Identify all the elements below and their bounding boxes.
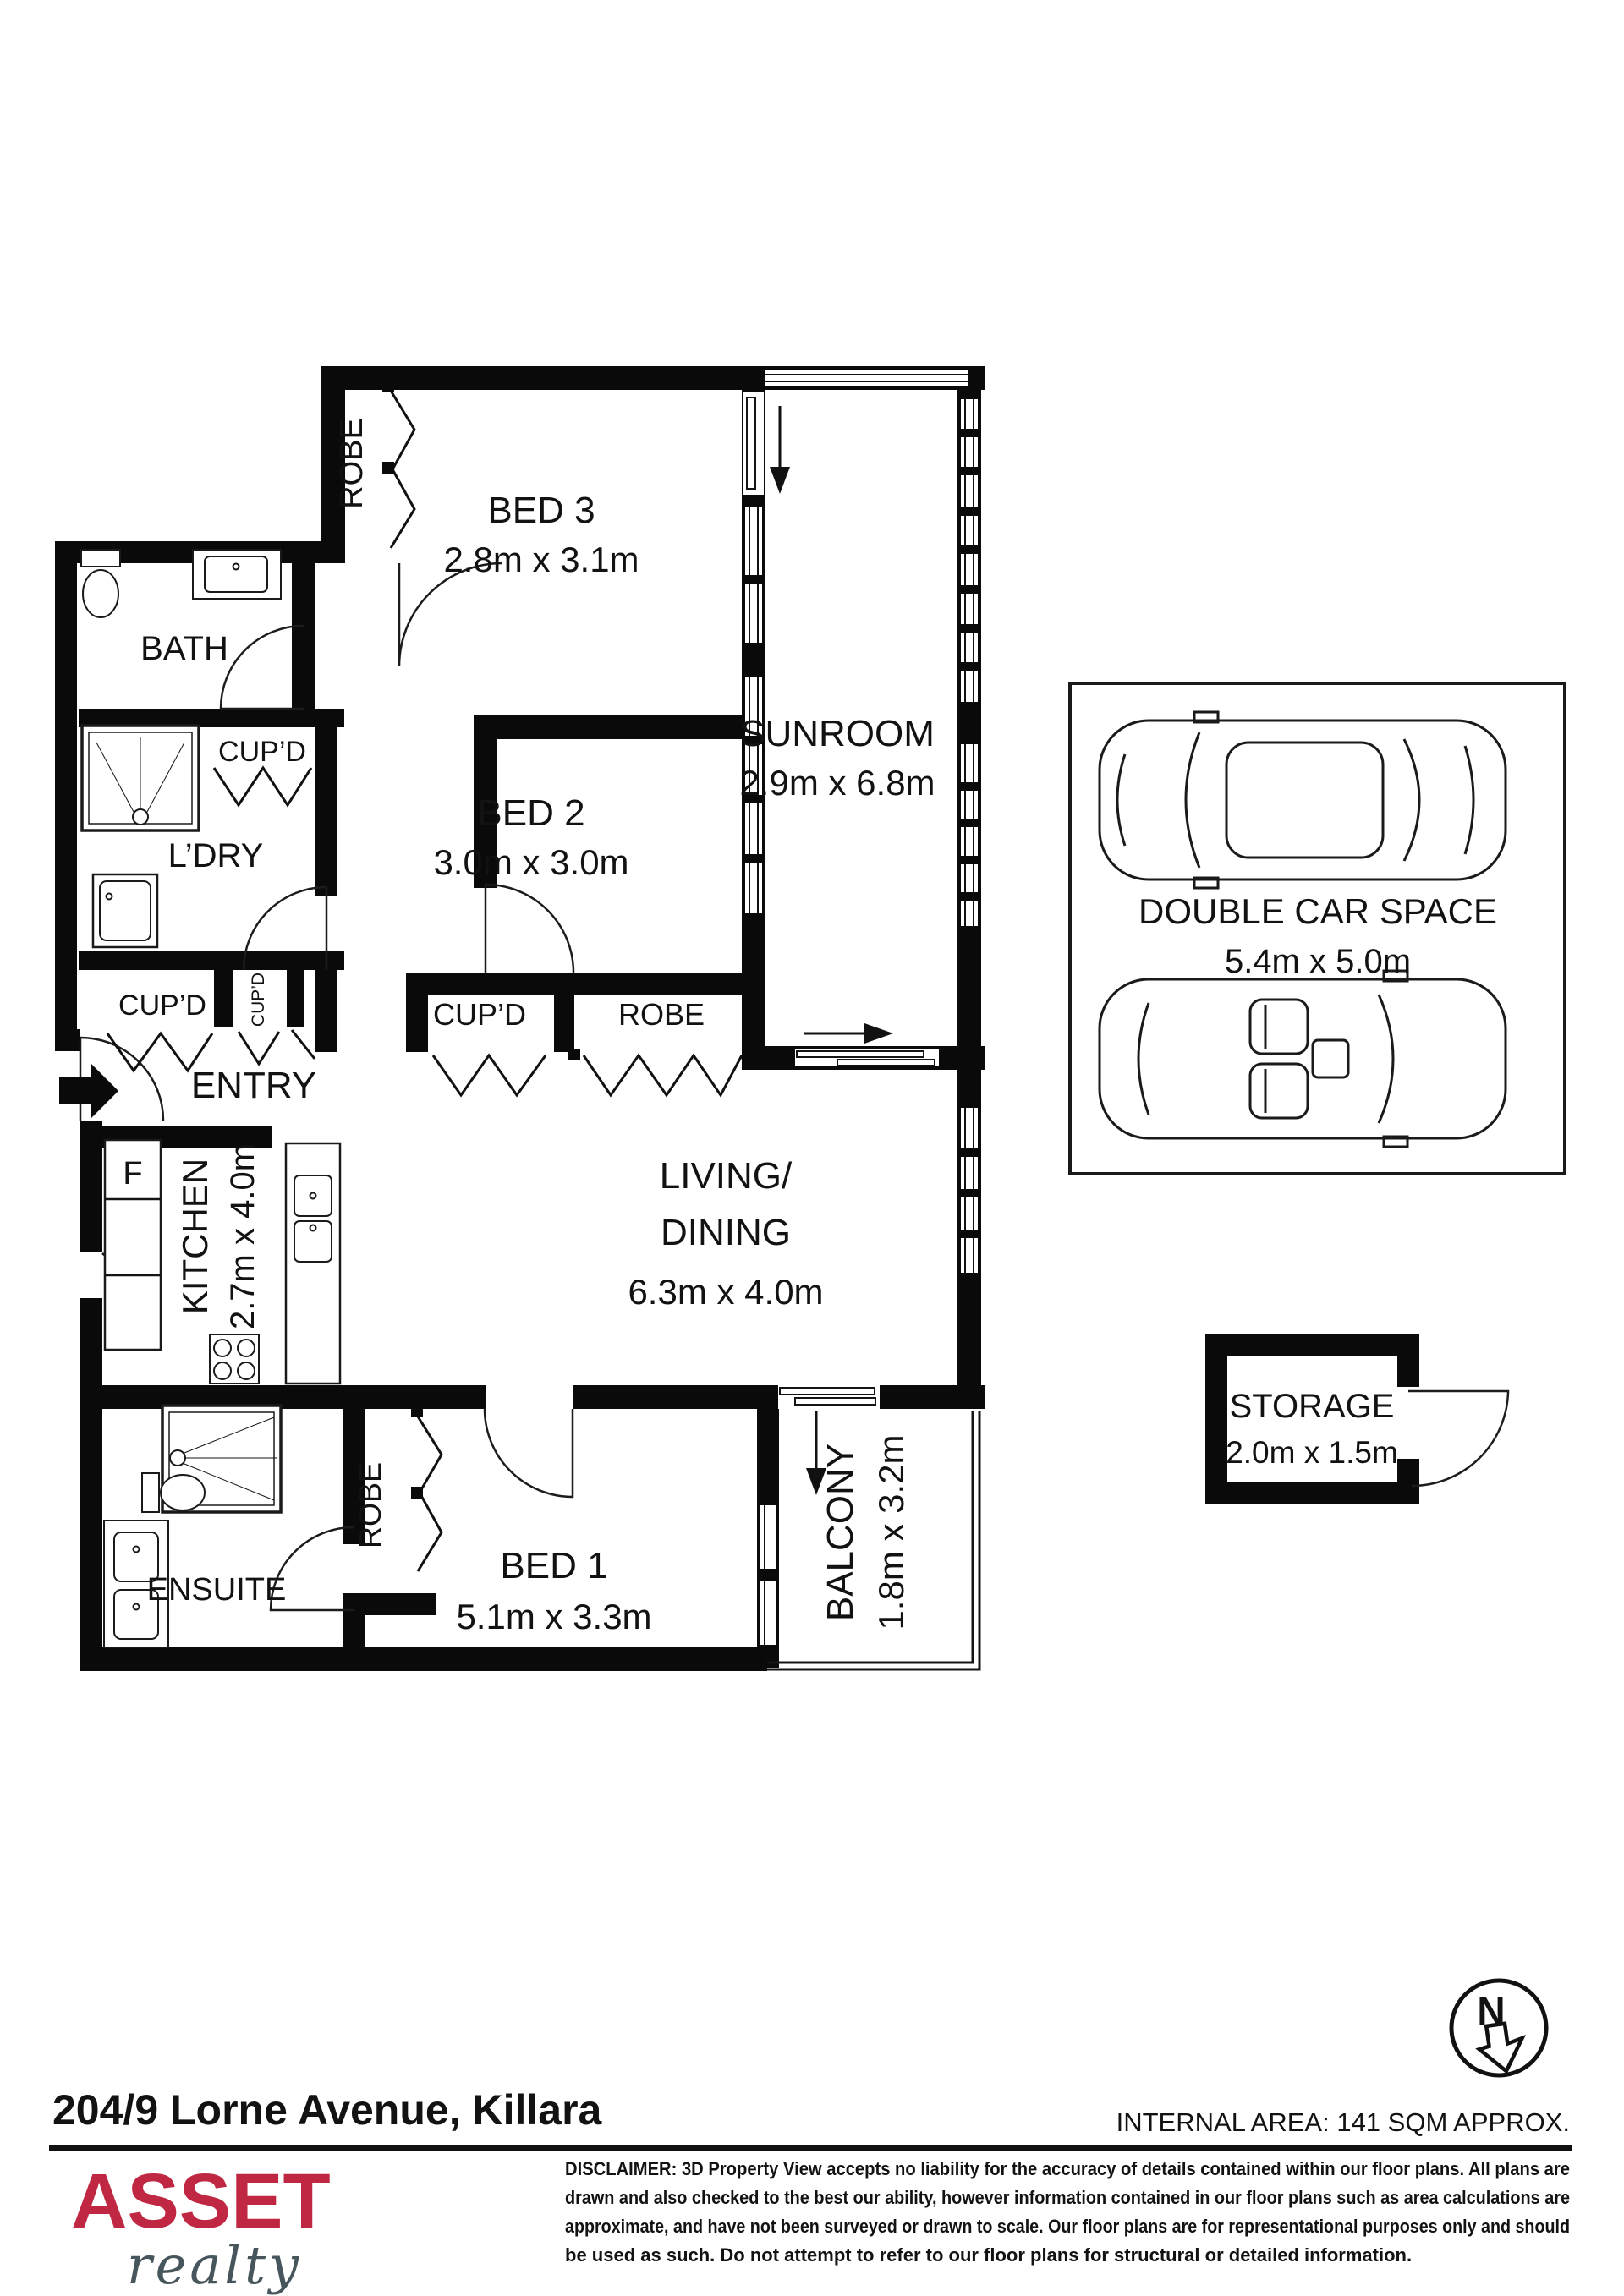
cupd-entry-label: CUP’D <box>118 989 206 1022</box>
divider-line <box>49 2145 1572 2151</box>
bed3-name: BED 3 <box>487 490 595 531</box>
kitchen-island-icon <box>286 1143 340 1384</box>
living-name-2: DINING <box>661 1212 791 1253</box>
bed2-dims: 3.0m x 3.0m <box>433 842 628 882</box>
bath-label: BATH <box>140 630 228 667</box>
disclaimer-line-4: be used as such. Do not attempt to refer… <box>565 2244 1412 2266</box>
internal-area: INTERNAL AREA: 141 SQM APPROX. <box>1116 2107 1570 2137</box>
address: 204/9 Lorne Avenue, Killara <box>52 2086 603 2134</box>
laundry-tub-icon <box>93 874 157 947</box>
kitchen-dims: 2.7m x 4.0m <box>224 1143 261 1329</box>
storage-dims: 2.0m x 1.5m <box>1226 1435 1398 1470</box>
floorplan-page: DOUBLE CAR SPACE 5.4m x 5.0m STORAGE 2.0… <box>0 0 1624 2296</box>
fridge-label: F <box>123 1156 142 1192</box>
disclaimer: DISCLAIMER: 3D Property View accepts no … <box>565 2158 1570 2266</box>
sunroom-dims: 2.9m x 6.8m <box>739 763 935 803</box>
cupd-bed2-label: CUP’D <box>433 997 526 1032</box>
kitchen-name: KITCHEN <box>175 1159 215 1314</box>
car-space: DOUBLE CAR SPACE 5.4m x 5.0m <box>1070 683 1565 1174</box>
robe-bed2-label: ROBE <box>618 997 705 1032</box>
robe-bed1-label: ROBE <box>353 1462 387 1548</box>
cooktop-icon <box>210 1334 259 1384</box>
disclaimer-line-3: approximate, and have not been surveyed … <box>565 2216 1570 2237</box>
agency-logo: ASSET realty <box>71 2158 331 2296</box>
toilet-icon <box>142 1473 205 1512</box>
robe-bed3-label: ROBE <box>334 418 370 509</box>
ensuite-fixtures <box>104 1406 281 1647</box>
bed2-name: BED 2 <box>477 792 584 834</box>
car-space-name: DOUBLE CAR SPACE <box>1138 891 1497 931</box>
bed1-name: BED 1 <box>500 1545 607 1586</box>
storage-name: STORAGE <box>1230 1388 1395 1425</box>
cupd-bath-label: CUP’D <box>218 736 306 768</box>
entry-arrow-icon <box>59 1064 118 1118</box>
disclaimer-line-1: DISCLAIMER: 3D Property View accepts no … <box>565 2158 1570 2179</box>
disclaimer-line-2: drawn and also checked to the best our a… <box>565 2187 1570 2208</box>
sunroom-name: SUNROOM <box>740 713 935 754</box>
floorplan-drawing: DOUBLE CAR SPACE 5.4m x 5.0m STORAGE 2.0… <box>0 0 1624 2296</box>
balcony-name: BALCONY <box>820 1444 861 1621</box>
living-dims: 6.3m x 4.0m <box>628 1272 823 1312</box>
shower-icon <box>82 726 199 830</box>
vanity-icon <box>193 550 281 599</box>
logo-asset: ASSET <box>71 2158 331 2244</box>
living-name-1: LIVING/ <box>660 1155 793 1197</box>
footer: 204/9 Lorne Avenue, Killara INTERNAL ARE… <box>49 2086 1572 2296</box>
bed3-dims: 2.8m x 3.1m <box>443 540 639 579</box>
sliding-doors <box>743 392 939 1495</box>
arrow-right-icon <box>804 1023 893 1044</box>
entry-label: ENTRY <box>191 1065 316 1106</box>
balcony-dims: 1.8m x 3.2m <box>871 1434 911 1630</box>
cupd-entry-small-label: CUP’D <box>249 973 268 1027</box>
ldry-label: L’DRY <box>168 837 264 874</box>
north-compass-icon: N <box>1451 1981 1546 2075</box>
bed1-dims: 5.1m x 3.3m <box>456 1597 651 1636</box>
toilet-icon <box>81 550 120 617</box>
arrow-down-icon <box>770 406 790 494</box>
logo-realty: realty <box>127 2234 302 2296</box>
car-space-dims: 5.4m x 5.0m <box>1225 943 1411 980</box>
storage: STORAGE 2.0m x 1.5m <box>1205 1334 1508 1504</box>
ensuite-label: ENSUITE <box>147 1572 287 1608</box>
